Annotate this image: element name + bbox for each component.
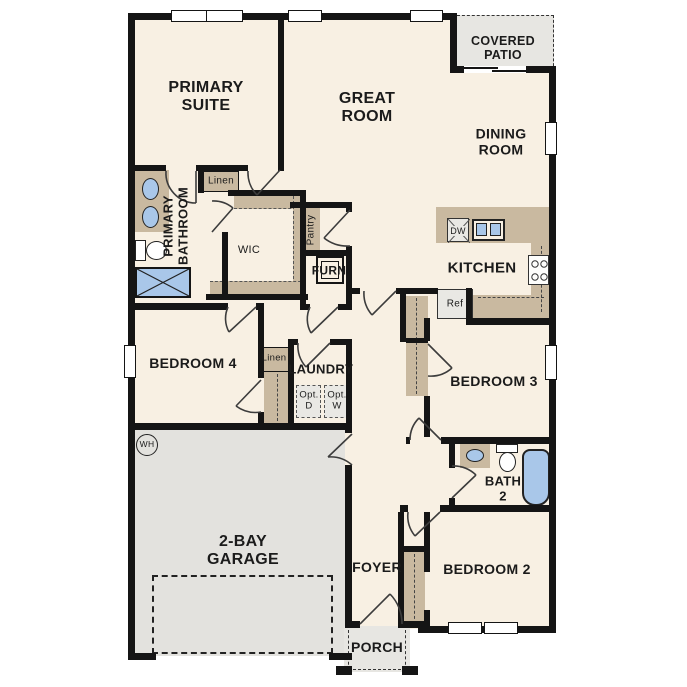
room-label-primary-bathroom: PRIMARY BATHROOM bbox=[161, 187, 190, 265]
wall-bedroom3-left-b bbox=[424, 396, 430, 443]
room-label-dining-room: DINING ROOM bbox=[476, 126, 527, 157]
porch-stub-left bbox=[336, 666, 352, 675]
stove bbox=[528, 255, 549, 285]
wall-furn-bottom-b bbox=[338, 304, 352, 310]
window-suite-1 bbox=[171, 10, 207, 22]
window-bedroom2-1 bbox=[448, 622, 482, 634]
shower bbox=[135, 267, 191, 298]
bedroom2-closet-dash bbox=[414, 554, 415, 624]
room-label-kitchen: KITCHEN bbox=[448, 261, 517, 278]
room-label-laundry: LAUNDRY bbox=[288, 363, 353, 378]
wall-suite-right bbox=[278, 13, 284, 171]
wall-garage-top bbox=[128, 423, 352, 430]
wall-laundry-top-a bbox=[288, 339, 298, 345]
floor-plan: DW Ref FURN bbox=[0, 0, 687, 687]
wall-furn-bottom-a bbox=[300, 304, 310, 310]
hall-closet-dash bbox=[277, 374, 278, 421]
wall-bedroom4-top-a bbox=[128, 303, 228, 310]
room-label-wic: WIC bbox=[238, 244, 260, 256]
room-label-foyer: FOYER bbox=[352, 560, 402, 576]
refrigerator-label: Ref bbox=[447, 298, 463, 309]
label-linen-primary: Linen bbox=[208, 175, 234, 186]
wall-pantry-top bbox=[290, 202, 352, 208]
primary-toilet-tank bbox=[135, 240, 146, 261]
bath2-sink bbox=[466, 449, 484, 462]
room-label-covered-patio: COVERED PATIO bbox=[471, 34, 535, 62]
bedroom2-door-opening bbox=[408, 505, 440, 512]
wall-wic-top bbox=[228, 190, 306, 196]
garage-door-opening bbox=[345, 433, 352, 465]
window-greatroom-1 bbox=[288, 10, 322, 22]
porch-stub-right bbox=[402, 666, 418, 675]
room-label-bedroom3: BEDROOM 3 bbox=[450, 374, 538, 390]
wall-wic-bottom bbox=[206, 294, 308, 300]
window-bedroom3 bbox=[545, 345, 557, 380]
furnace-label: FURN bbox=[312, 264, 347, 277]
wall-bath2-left-a bbox=[449, 444, 455, 468]
bath2-tub bbox=[522, 449, 550, 506]
wall-kitchen-bottom bbox=[466, 318, 556, 325]
bath2-toilet-bowl bbox=[499, 452, 516, 472]
room-label-bedroom4: BEDROOM 4 bbox=[149, 356, 237, 372]
wall-bedroom4-right-a bbox=[258, 303, 264, 378]
room-label-great-room: GREAT ROOM bbox=[339, 90, 395, 126]
window-bedroom2-2 bbox=[484, 622, 518, 634]
wall-hall-top-a bbox=[352, 288, 360, 294]
bedroom3-closet-strip bbox=[406, 296, 428, 396]
window-greatroom-2 bbox=[410, 10, 443, 22]
shower-x-icon bbox=[137, 269, 189, 296]
room-label-primary-suite: PRIMARY SUITE bbox=[168, 79, 243, 115]
wall-pantry-right-a bbox=[346, 202, 352, 212]
room-label-bedroom2: BEDROOM 2 bbox=[443, 562, 531, 578]
stove-burners-icon bbox=[529, 256, 550, 286]
wall-suite-bottom-a bbox=[128, 165, 166, 171]
wall-garage-bottom-right bbox=[329, 653, 352, 660]
room-label-garage: 2-BAY GARAGE bbox=[207, 533, 279, 569]
wall-bedroom3-left-a bbox=[424, 318, 430, 341]
bedroom3-door-opening bbox=[410, 437, 441, 444]
window-suite-2 bbox=[206, 10, 243, 22]
wall-furn-top bbox=[300, 250, 352, 256]
patio-slider-door bbox=[464, 66, 526, 73]
wall-wic-left bbox=[222, 232, 228, 300]
label-opt-dryer: Opt. D bbox=[299, 390, 318, 411]
kitchen-counter-bottom bbox=[473, 295, 549, 318]
room-label-porch: PORCH bbox=[351, 640, 403, 656]
wall-laundry-right bbox=[346, 345, 352, 423]
counter-dashed-line-bottom bbox=[478, 297, 544, 298]
wall-hall-closet-left bbox=[400, 294, 406, 342]
label-pantry: Pantry bbox=[305, 215, 316, 246]
wall-garage-bottom-left bbox=[128, 653, 156, 660]
wall-laundry-left bbox=[288, 345, 294, 423]
vanity-sink-1 bbox=[142, 178, 159, 200]
label-opt-washer: Opt. W bbox=[327, 390, 346, 411]
vanity-sink-2 bbox=[142, 206, 159, 228]
wall-kitchen-bottom-jog bbox=[466, 288, 472, 320]
hall-closet-strip bbox=[264, 372, 288, 423]
wall-patio-left bbox=[450, 13, 457, 73]
garage-door-outline bbox=[152, 575, 333, 654]
window-dining bbox=[545, 122, 557, 155]
dishwasher-label: DW bbox=[449, 226, 467, 236]
window-bedroom4 bbox=[124, 345, 136, 378]
wall-bedroom2-closet-right-b bbox=[424, 610, 430, 626]
wall-foyer-bottom-right bbox=[402, 621, 424, 628]
room-label-bath2: BATH 2 bbox=[485, 474, 521, 503]
wall-left bbox=[128, 13, 135, 660]
kitchen-sink bbox=[472, 219, 505, 241]
wall-bedroom2-closet-right-a bbox=[424, 512, 430, 572]
wall-linen-left bbox=[198, 171, 204, 193]
label-linen-hall: Linen bbox=[262, 354, 287, 365]
wall-bedroom4-right-b bbox=[258, 412, 264, 423]
label-water-heater: WH bbox=[140, 440, 155, 450]
bedroom3-closet-dash bbox=[416, 298, 417, 394]
